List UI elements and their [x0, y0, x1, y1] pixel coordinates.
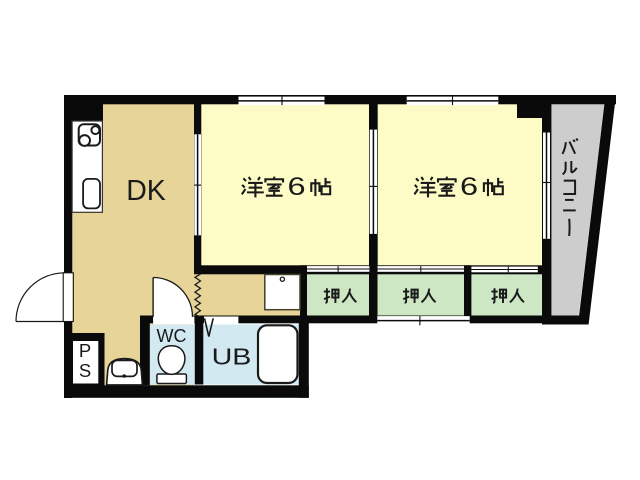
svg-text:DK: DK: [126, 175, 166, 207]
svg-text:6: 6: [287, 173, 305, 201]
svg-text:S: S: [79, 360, 91, 381]
svg-text:WC: WC: [157, 326, 187, 346]
svg-text:6: 6: [460, 173, 478, 201]
svg-text:UB: UB: [212, 343, 252, 370]
svg-text:P: P: [79, 340, 91, 361]
